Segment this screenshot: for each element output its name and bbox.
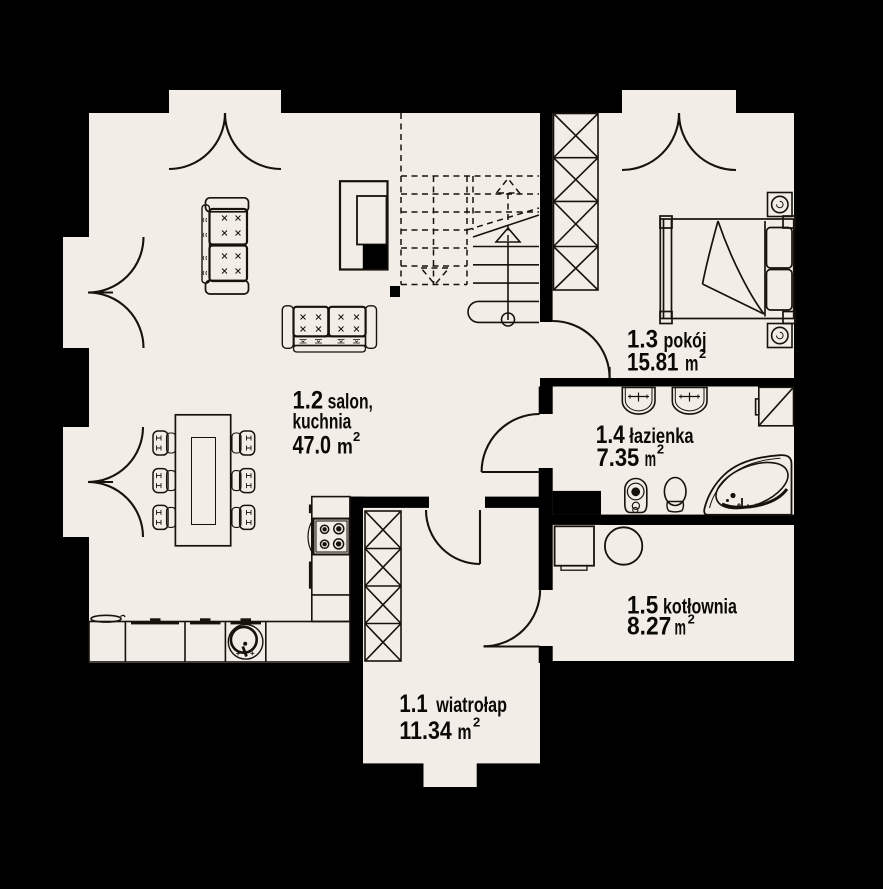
svg-text:7.35: 7.35 — [597, 444, 640, 472]
svg-text:2: 2 — [353, 429, 360, 444]
svg-text:47.0: 47.0 — [293, 432, 332, 460]
svg-text:m: m — [458, 721, 472, 744]
svg-text:15.81: 15.81 — [627, 349, 679, 377]
svg-text:2: 2 — [688, 612, 695, 627]
svg-text:wiatrołap: wiatrołap — [435, 694, 507, 717]
svg-text:m: m — [645, 448, 657, 471]
svg-text:m: m — [685, 353, 698, 376]
svg-text:8.27: 8.27 — [627, 613, 671, 641]
svg-text:kuchnia: kuchnia — [293, 411, 352, 434]
svg-text:2: 2 — [473, 715, 480, 730]
svg-text:m: m — [337, 436, 353, 459]
svg-text:2: 2 — [699, 346, 706, 361]
svg-text:1.1: 1.1 — [399, 690, 427, 718]
svg-text:m: m — [675, 617, 687, 640]
svg-text:11.34: 11.34 — [399, 717, 451, 745]
svg-text:kotłownia: kotłownia — [663, 595, 737, 618]
svg-text:2: 2 — [657, 442, 664, 457]
